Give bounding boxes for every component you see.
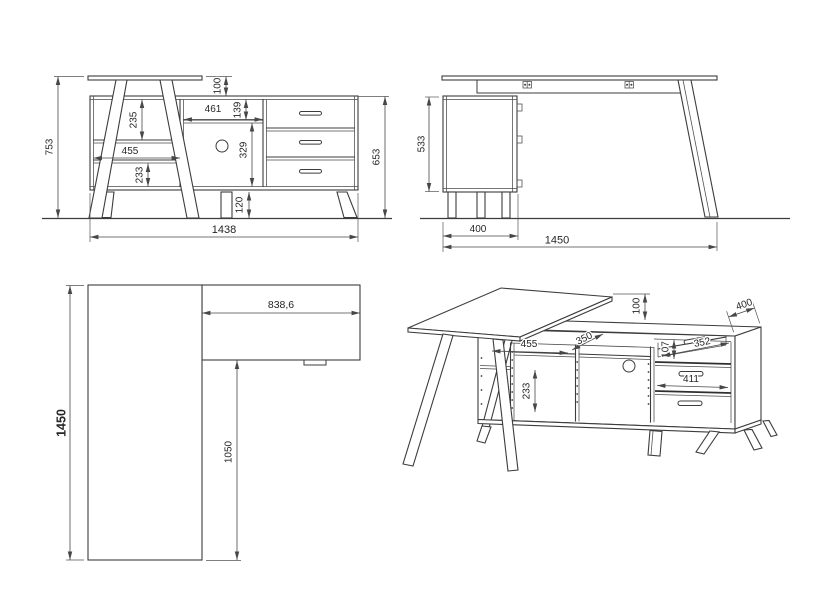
foot: [696, 431, 719, 454]
drawer-handle: [300, 141, 322, 145]
desk-top: [88, 76, 202, 80]
side-cabinet: [443, 96, 522, 218]
dim-persp-drawer-inner-width: 411: [683, 374, 699, 385]
desk-leg-rear: [678, 80, 718, 217]
perspective-view: 100 400 350 455 233 107 352 411: [403, 288, 777, 471]
dim-side-cabinet-height: 533: [417, 135, 428, 152]
side-view: 533 400 1450: [417, 76, 791, 252]
plan-view: 1450 838,6 1050: [55, 285, 361, 561]
dim-persp-compartment-width: 455: [521, 339, 538, 350]
dim-front-panel-height: 329: [239, 141, 250, 158]
foot: [502, 192, 510, 218]
dim-plan-sideboard-length: 838,6: [268, 299, 294, 311]
persp-cabinet-side: [735, 327, 761, 429]
dim-front-desk-overhang: 100: [213, 77, 224, 94]
cable-hole: [623, 360, 635, 372]
foot: [477, 192, 485, 218]
drawer-slide-tab: [517, 136, 522, 143]
plan-sideboard: [202, 285, 360, 360]
dim-front-total-width: 1438: [212, 224, 236, 236]
desk-rail: [477, 80, 688, 93]
cabinet-feet: [100, 192, 357, 218]
dim-persp-shelf-gap-bottom: 233: [522, 382, 533, 399]
foot: [221, 192, 232, 218]
dim-front-shelf-gap-bottom: 233: [135, 166, 146, 183]
cable-hole: [216, 140, 228, 152]
desk-top: [442, 76, 717, 80]
dim-front-niche-height: 139: [233, 101, 244, 118]
foot: [763, 421, 777, 437]
front-view: 753 100 235 455 233 461 139 329 120 653: [42, 76, 392, 242]
drawer-handle: [678, 401, 702, 406]
dim-plan-desk-clear-depth: 1050: [224, 440, 235, 463]
plan-notch: [304, 360, 326, 365]
dim-side-total-depth: 1450: [545, 235, 569, 247]
dim-front-plinth-height: 120: [235, 196, 246, 213]
dim-side-cabinet-depth: 400: [470, 224, 487, 235]
dim-front-cabinet-height: 653: [372, 148, 383, 165]
dim-persp-desk-overhang: 100: [632, 297, 643, 314]
technical-drawing-canvas: 753 100 235 455 233 461 139 329 120 653: [0, 0, 814, 611]
dim-front-niche-width: 461: [205, 104, 222, 115]
foot: [648, 431, 662, 457]
drawer-handle: [300, 170, 322, 174]
drawer-slide-tab: [517, 104, 522, 111]
drawer-handle: [300, 112, 322, 116]
foot: [744, 430, 762, 451]
dim-front-compartment-width: 455: [122, 146, 139, 157]
technical-drawing-page: 753 100 235 455 233 461 139 329 120 653: [0, 0, 814, 611]
dim-persp-cabinet-depth: 400: [735, 297, 755, 313]
foot: [477, 426, 491, 443]
foot: [448, 192, 456, 218]
foot: [337, 192, 357, 218]
dim-front-shelf-gap-top: 235: [129, 111, 140, 128]
dim-front-total-height: 753: [45, 138, 56, 155]
cabinet-outline: [443, 96, 517, 192]
dim-plan-total-depth: 1450: [55, 409, 69, 437]
drawer-slide-tab: [517, 180, 522, 187]
desk-leg-front-left: [403, 334, 453, 466]
plan-desk-top: [88, 285, 202, 560]
